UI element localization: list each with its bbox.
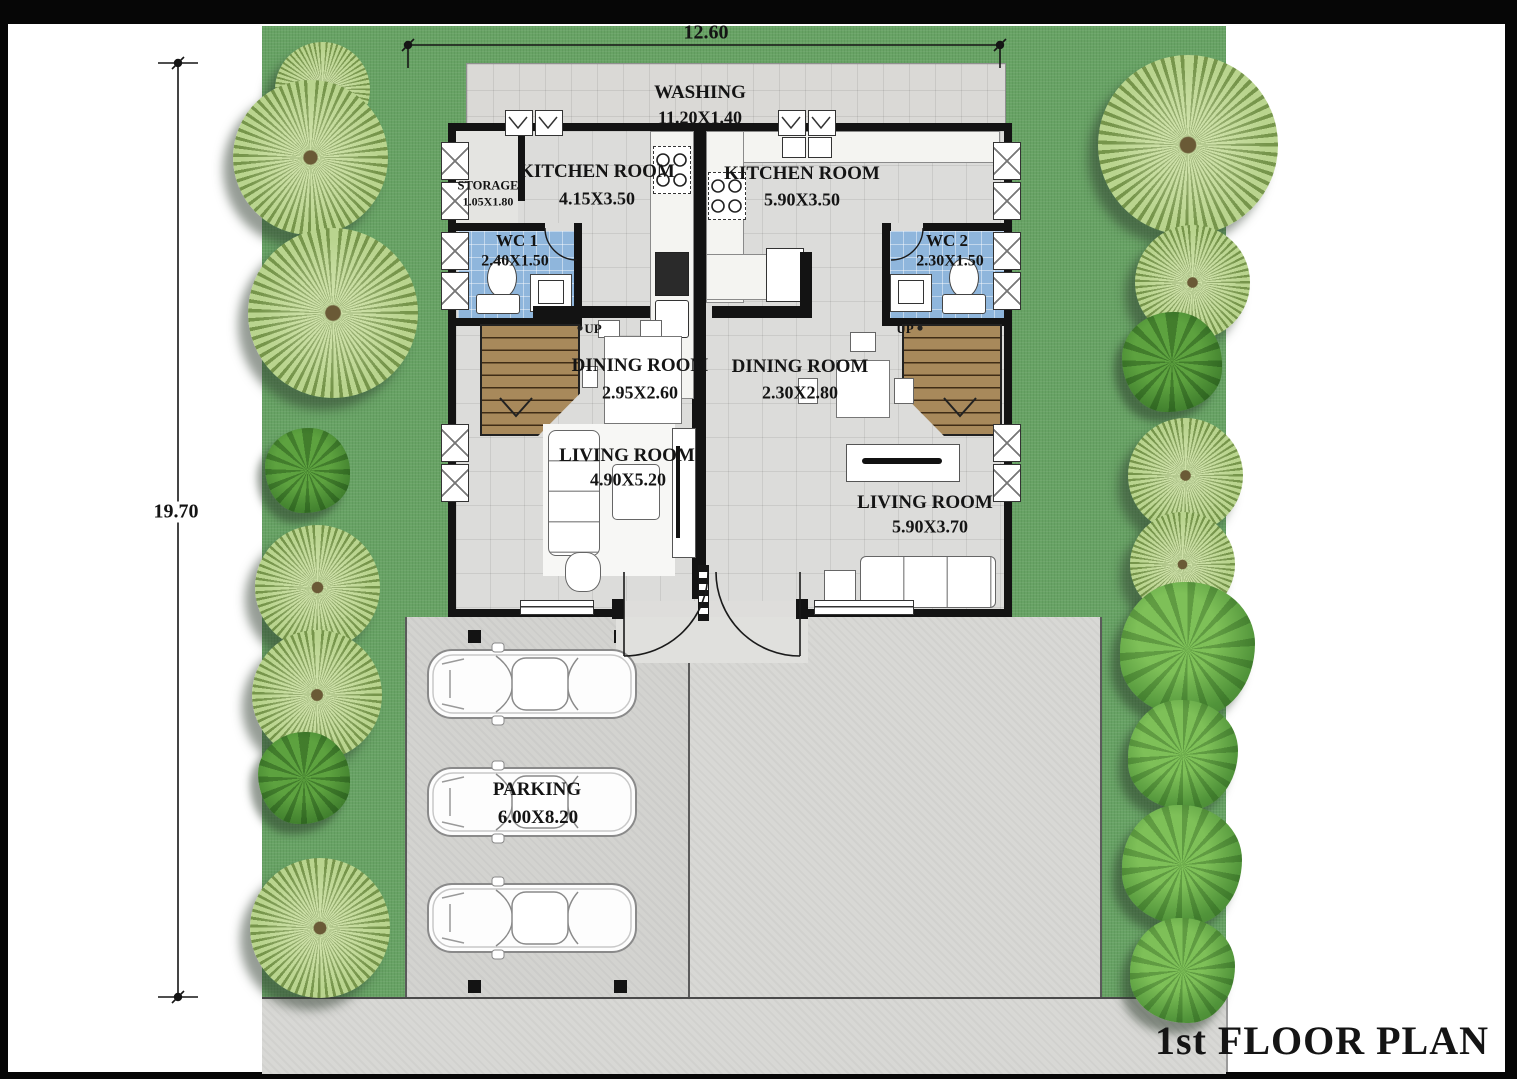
entry-porch bbox=[616, 617, 808, 663]
entry-threshold bbox=[622, 601, 798, 617]
leafy-tree-icon bbox=[1122, 805, 1242, 925]
window bbox=[441, 424, 469, 462]
washing-size-label: 11.20X1.40 bbox=[658, 109, 742, 128]
window bbox=[993, 272, 1021, 310]
wc2-label: WC 2 bbox=[926, 232, 968, 250]
wc1-size-label: 2.40X1.50 bbox=[481, 254, 549, 271]
oven-symbol-left bbox=[655, 252, 689, 296]
kitchen-cabinet-right bbox=[766, 248, 804, 302]
washer-symbol bbox=[778, 110, 806, 136]
bush-icon bbox=[258, 732, 350, 824]
sink-basin bbox=[898, 280, 924, 304]
door-post bbox=[796, 599, 808, 619]
kitchen-right-size-label: 5.90X3.50 bbox=[764, 191, 840, 210]
chair-symbol bbox=[850, 332, 876, 352]
window bbox=[993, 142, 1021, 180]
kitchen-counter-right-top bbox=[706, 131, 1000, 163]
dining-table-left bbox=[604, 336, 682, 424]
chair-symbol bbox=[894, 378, 914, 404]
dining-right-size-label: 2.30X2.80 bbox=[762, 384, 838, 403]
entry-mullion bbox=[698, 565, 709, 621]
parking-marker bbox=[468, 630, 481, 643]
door-post bbox=[612, 599, 624, 619]
kitchen-wall-stub-right bbox=[800, 252, 812, 318]
tv-symbol-right bbox=[862, 458, 942, 464]
window bbox=[441, 142, 469, 180]
window bbox=[441, 464, 469, 502]
front-sidewalk bbox=[262, 997, 1226, 1074]
parking-label: PARKING bbox=[493, 780, 581, 800]
up-label-right: UP bbox=[896, 322, 913, 336]
parking-marker bbox=[614, 980, 627, 993]
wc2-left-wall bbox=[882, 223, 890, 326]
living-left-size-label: 4.90X5.20 bbox=[590, 471, 666, 490]
storage-size-label: 1.05X1.80 bbox=[463, 196, 514, 209]
window bbox=[993, 232, 1021, 270]
kitchen-sink-right bbox=[782, 137, 806, 158]
storage-label: STORAGE bbox=[458, 179, 519, 192]
washer-symbol bbox=[505, 110, 533, 136]
kitchen-sink-right bbox=[808, 137, 832, 158]
living-left-label: LIVING ROOM bbox=[559, 446, 695, 466]
toilet-tank-symbol bbox=[942, 294, 986, 314]
kitchen-right-label: KITCHEN ROOM bbox=[724, 164, 880, 184]
kitchen-peninsula-right bbox=[706, 254, 770, 300]
top-dimension-label: 12.60 bbox=[684, 23, 729, 44]
palm-tree-icon bbox=[233, 80, 388, 235]
window bbox=[993, 424, 1021, 462]
kitchen-dining-wall-left bbox=[533, 306, 650, 318]
toilet-tank-symbol bbox=[476, 294, 520, 314]
window bbox=[441, 232, 469, 270]
wc1-label: WC 1 bbox=[496, 232, 538, 250]
wc1-door-gap bbox=[545, 223, 577, 231]
left-dimension-label: 19.70 bbox=[151, 502, 202, 523]
window bbox=[993, 182, 1021, 220]
bush-icon bbox=[265, 428, 350, 513]
washer-symbol bbox=[535, 110, 563, 136]
floor-plan-canvas: 12.60 19.70 WASHING 11.20X1.40 STORAGE 1… bbox=[0, 0, 1517, 1079]
leafy-tree-icon bbox=[1130, 918, 1235, 1023]
leafy-tree-icon bbox=[1120, 582, 1255, 717]
washer-symbol bbox=[808, 110, 836, 136]
window bbox=[814, 600, 914, 615]
parking-marker bbox=[468, 980, 481, 993]
wc2-door-gap bbox=[891, 223, 923, 231]
window bbox=[993, 464, 1021, 502]
living-right-label: LIVING ROOM bbox=[857, 493, 993, 513]
dining-left-label: DINING ROOM bbox=[572, 356, 709, 376]
leafy-tree-icon bbox=[1128, 700, 1238, 810]
wc2-size-label: 2.30X1.50 bbox=[916, 254, 984, 271]
dining-left-size-label: 2.95X2.60 bbox=[602, 384, 678, 403]
window bbox=[441, 272, 469, 310]
kitchen-left-size-label: 4.15X3.50 bbox=[559, 190, 635, 209]
up-label-left: UP bbox=[584, 322, 601, 336]
dining-right-label: DINING ROOM bbox=[732, 357, 869, 377]
kitchen-left-label: KITCHEN ROOM bbox=[519, 162, 675, 182]
living-right-size-label: 5.90X3.70 bbox=[892, 518, 968, 537]
parking-size-label: 6.00X8.20 bbox=[498, 808, 578, 828]
palm-tree-icon bbox=[250, 858, 390, 998]
washing-label: WASHING bbox=[654, 83, 746, 103]
kitchen-dining-wall-right bbox=[712, 306, 802, 318]
window bbox=[520, 600, 594, 615]
palm-tree-icon bbox=[1098, 55, 1278, 235]
side-table-symbol bbox=[824, 570, 856, 602]
plan-title: 1st FLOOR PLAN bbox=[1155, 1020, 1489, 1062]
armchair-symbol bbox=[565, 552, 601, 592]
palm-tree-icon bbox=[248, 228, 418, 398]
sink-basin bbox=[538, 280, 564, 304]
bush-icon bbox=[1122, 312, 1222, 412]
